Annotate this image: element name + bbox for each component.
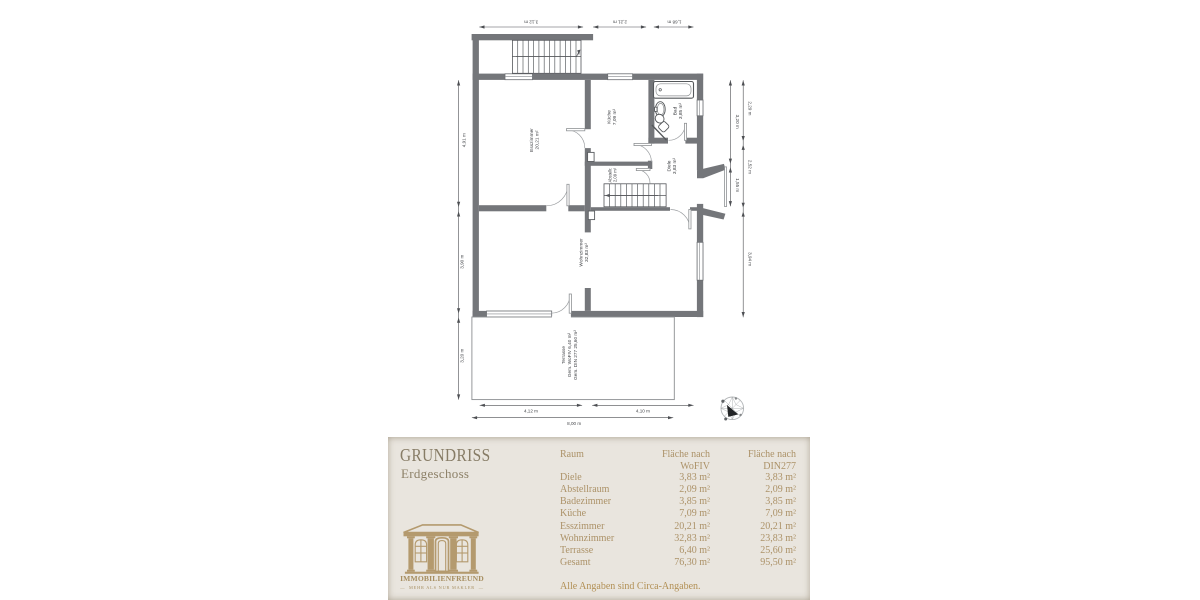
svg-text:1,68 m: 1,68 m xyxy=(667,20,681,25)
svg-text:20,21 m²: 20,21 m² xyxy=(535,130,541,149)
svg-text:4,10 m: 4,10 m xyxy=(636,409,650,414)
svg-text:4,91 m: 4,91 m xyxy=(461,133,466,147)
svg-text:3,83 m²: 3,83 m² xyxy=(672,157,678,174)
svg-text:Esszimmer: Esszimmer xyxy=(529,128,535,152)
svg-text:Terrasse: Terrasse xyxy=(561,346,566,364)
svg-text:2,29 m: 2,29 m xyxy=(747,101,752,115)
svg-text:2,21 m: 2,21 m xyxy=(613,20,627,25)
svg-text:Gem. WoFIV 6,40 m²: Gem. WoFIV 6,40 m² xyxy=(567,332,572,377)
svg-text:7,09 m²: 7,09 m² xyxy=(612,108,618,125)
svg-text:Gem. DIN 277 25,60 m²: Gem. DIN 277 25,60 m² xyxy=(573,330,578,380)
svg-text:2,09 m²: 2,09 m² xyxy=(613,167,618,182)
svg-text:3,20 m: 3,20 m xyxy=(460,349,465,363)
svg-text:Küche: Küche xyxy=(606,110,612,124)
svg-text:1,55 m: 1,55 m xyxy=(735,178,740,192)
svg-text:Diele: Diele xyxy=(666,160,672,171)
svg-text:3,94 m: 3,94 m xyxy=(747,252,752,266)
svg-text:2,52 m: 2,52 m xyxy=(747,160,752,174)
svg-text:8,00 m: 8,00 m xyxy=(567,421,581,426)
svg-text:3,90 m: 3,90 m xyxy=(460,255,465,269)
svg-text:3,12 m: 3,12 m xyxy=(524,20,538,25)
svg-text:4,12 m: 4,12 m xyxy=(524,409,538,414)
svg-text:Wohnzimmer: Wohnzimmer xyxy=(578,238,584,267)
svg-text:Bad: Bad xyxy=(672,106,678,115)
svg-text:3,20 m: 3,20 m xyxy=(735,115,740,129)
svg-text:3,85 m²: 3,85 m² xyxy=(678,102,684,119)
svg-text:32,83 m²: 32,83 m² xyxy=(584,243,590,262)
